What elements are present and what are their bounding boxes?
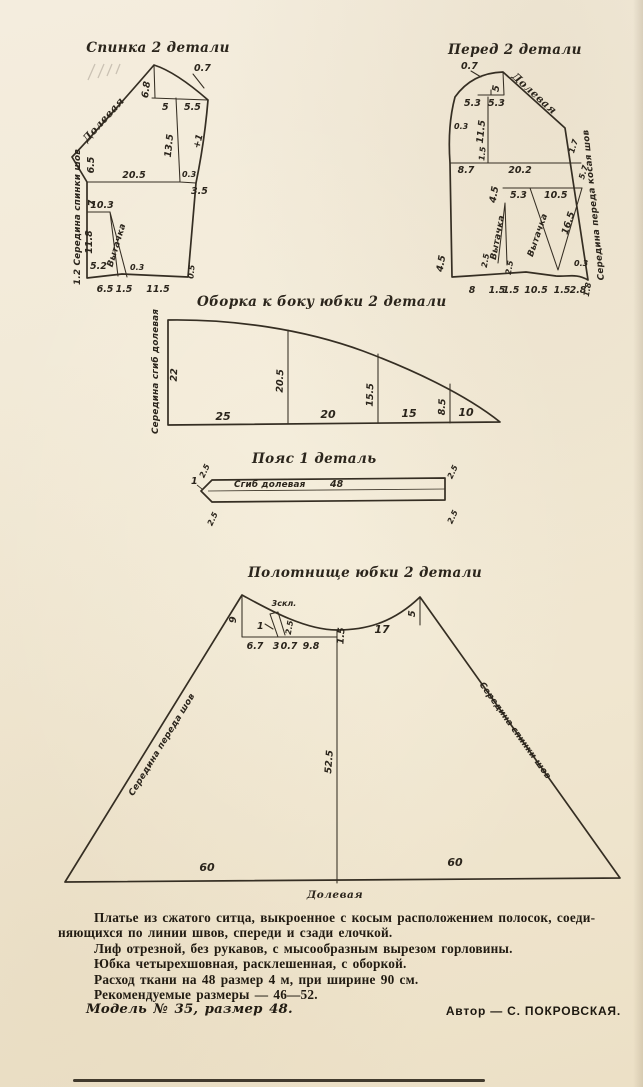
front-dim-corner: 1.8 — [582, 281, 593, 297]
skirt-grain-label: Долевая — [306, 889, 363, 901]
description-paragraph-1: Платье из сжатого ситца, выкроенное с ко… — [58, 910, 624, 941]
description-block: Платье из сжатого ситца, выкроенное с ко… — [58, 910, 624, 1018]
belt-tip-leader — [197, 485, 202, 489]
back-dim-corner: 0.5 — [186, 264, 196, 279]
skirt-dim-wc: 0.7 — [281, 641, 298, 652]
back-title: Спинка 2 детали — [86, 40, 230, 56]
back-dim-neck-a: 5 — [162, 102, 169, 113]
front-dim-neck-top: 5 — [491, 84, 503, 93]
skirt-pleat-label: 3скл. — [272, 599, 297, 608]
description-line-sizes: Рекомендуемые размеры — 46—52. — [58, 987, 624, 1002]
back-piece-diagram: Спинка 2 детали Долевая 1.2 Середина спи… — [48, 38, 238, 304]
author-line: Автор — С. ПОКРОВСКАЯ. — [446, 1004, 621, 1018]
back-dim-armhole: 13.5 — [163, 133, 176, 158]
back-dim-seg1: 6.5 — [86, 156, 97, 173]
back-dart-label: Вытачка — [106, 222, 129, 268]
back-dim-neck-b: 5.5 — [184, 102, 201, 113]
back-dim-hem1: 6.5 — [97, 284, 114, 295]
front-dim-bust-a: 8.7 — [458, 165, 475, 176]
back-dim-neck-h: 6.8 — [140, 80, 153, 99]
skirt-dim-notch: 1.5 — [335, 627, 347, 645]
front-dim-neck-a: 5.3 — [464, 98, 481, 109]
back-grain-label: Долевая — [80, 95, 127, 146]
ruffle-w-1: 20 — [320, 408, 336, 421]
front-title: Перед 2 детали — [447, 42, 582, 58]
back-dim-step: 3.5 — [191, 186, 208, 197]
front-dim-side-notch: 0.3 — [574, 259, 589, 268]
skirt-dim-wd: 9.8 — [303, 641, 320, 652]
ruffle-title: Оборка к боку юбки 2 детали — [197, 294, 447, 310]
ruffle-h-1: 20.5 — [275, 369, 287, 393]
front-dim-left-h: 4.5 — [434, 254, 448, 274]
back-dim-width: 20.5 — [122, 170, 146, 181]
front-dim-bust-b: 20.2 — [508, 165, 532, 176]
front-dim-armhole: 11.5 — [475, 119, 488, 144]
front-dim-dart2-b: 10.5 — [544, 190, 568, 201]
skirt-dim-wa: 6.7 — [247, 641, 264, 652]
description-line: няющихся по линии швов, спереди и сзади … — [58, 925, 624, 940]
front-dim-dart1-h: 4.5 — [487, 185, 501, 205]
belt-corner-3: 2.5 — [446, 508, 460, 525]
back-dim-seg3: 11.8 — [84, 230, 95, 254]
belt-tip: 1 — [191, 476, 198, 487]
belt-title: Пояс 1 деталь — [251, 451, 377, 467]
skirt-dim-one: 1 — [257, 621, 264, 632]
front-dim-ease: 0.7 — [461, 61, 478, 72]
ruffle-w-3: 10 — [458, 406, 474, 419]
skirt-dim-left-v: 9 — [228, 616, 239, 624]
belt-diagram: Пояс 1 деталь Сгиб долевая 48 1 2.5 2.5 … — [188, 446, 475, 528]
front-dim-left-curve: 0.3 — [454, 122, 469, 131]
ruffle-w-0: 25 — [215, 410, 231, 423]
front-dart1-label: Вытачка — [489, 215, 507, 261]
front-dim-hem-d: 10.5 — [524, 285, 548, 296]
skirt-construction-lines — [242, 595, 420, 883]
back-dim-side-ease: +1 — [191, 133, 205, 150]
scan-edge-artifact — [73, 1079, 485, 1082]
ruffle-diagram: Оборка к боку юбки 2 детали Середина сги… — [143, 293, 515, 445]
back-dim-ease: 0.7 — [194, 63, 211, 74]
front-grain-label: Долевая — [508, 70, 559, 117]
skirt-dim-hem-l: 60 — [199, 861, 215, 874]
ruffle-h-2: 15.5 — [365, 383, 377, 407]
belt-corner-1: 2.5 — [206, 510, 220, 527]
skirt-title: Полотнище юбки 2 детали — [247, 565, 482, 581]
back-dim-hem-rise: 0.3 — [130, 263, 145, 272]
front-dim-dart2-side: 16.5 — [560, 210, 578, 236]
skirt-dim-right-w: 17 — [374, 623, 390, 636]
ruffle-side-label: Середина сгиб долевая — [150, 309, 161, 434]
belt-corner-0: 2.5 — [198, 462, 212, 479]
back-dim-dart-pos: 10.3 — [90, 200, 114, 211]
belt-length: 48 — [329, 479, 344, 490]
skirt-dim-pleat-w: 2.5 — [284, 619, 295, 635]
skirt-dim-right-v: 5 — [407, 610, 418, 618]
page-edge-shade — [633, 0, 643, 1087]
skirt-panel-diagram: Полотнище юбки 2 детали Середина переда … — [52, 562, 634, 910]
skirt-dim-hem-r: 60 — [447, 856, 463, 869]
back-dim-notch: 0.3 — [182, 170, 197, 179]
back-dim-seg4: 5.2 — [90, 261, 107, 272]
front-dim-neck-b: 5.3 — [488, 98, 505, 109]
skirt-left-seam-label: Середина переда шов — [127, 692, 197, 798]
skirt-dim-length: 52.5 — [323, 749, 336, 774]
skirt-right-seam-label: Середина спинки шов — [477, 681, 553, 782]
description-line: Платье из сжатого ситца, выкроенное с ко… — [58, 910, 624, 925]
description-line-bodice: Лиф отрезной, без рукавов, с мысообразны… — [58, 941, 624, 956]
pencil-marks — [88, 64, 120, 80]
front-dim-tick: 1.5 — [477, 146, 487, 161]
back-seam-label: 1.2 Середина спинки шов — [73, 149, 83, 285]
belt-fold-label: Сгиб долевая — [234, 479, 306, 490]
front-dim-side-a: 1.7 — [567, 138, 580, 155]
front-dim-dart2-a: 5.3 — [510, 190, 527, 201]
front-dim-hem-e: 1.5 — [554, 285, 571, 296]
front-piece-diagram: Перед 2 детали Долевая Середина переда к… — [436, 40, 624, 302]
ruffle-h-3: 8.5 — [437, 398, 449, 416]
ruffle-h-0: 22 — [169, 368, 180, 382]
front-dim-small-a: 2.5 — [480, 252, 491, 268]
belt-corner-2: 2.5 — [446, 463, 460, 480]
ruffle-w-2: 15 — [401, 407, 417, 420]
scanned-pattern-page: Спинка 2 детали Долевая 1.2 Середина спи… — [0, 0, 643, 1087]
skirt-dim-wb: 3 — [273, 641, 280, 652]
back-dim-hem2: 1.5 — [116, 284, 133, 295]
description-line-fabric: Расход ткани на 48 размер 4 м, при ширин… — [58, 972, 624, 987]
description-line-skirt: Юбка четырехшовная, расклешенная, с обор… — [58, 956, 624, 971]
